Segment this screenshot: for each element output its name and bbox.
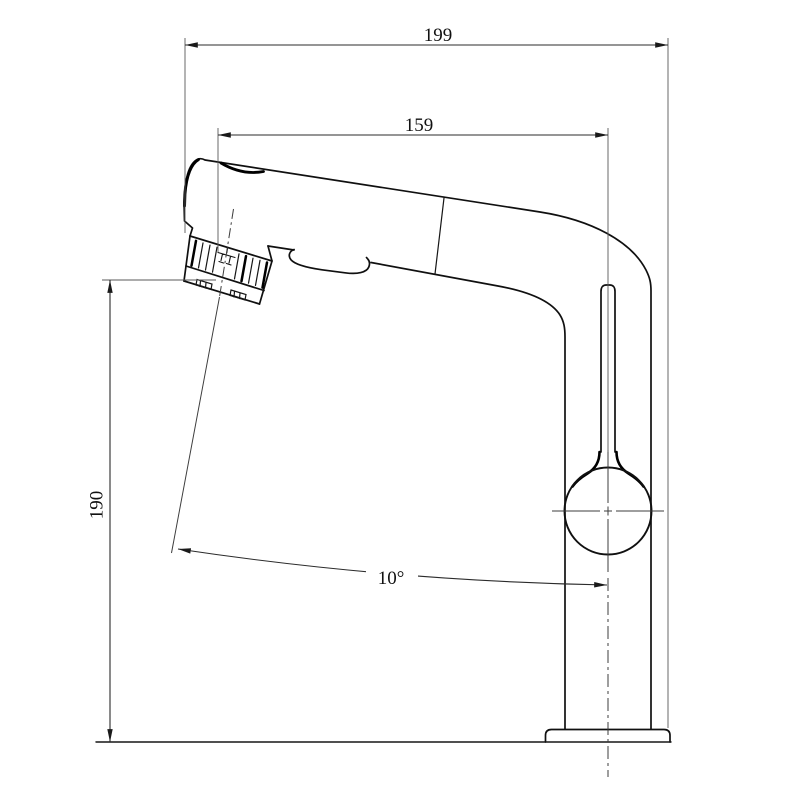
faucet-outline bbox=[96, 159, 671, 742]
head-bottom-edge bbox=[184, 281, 260, 304]
spray-axis-extension bbox=[172, 297, 220, 553]
dim-value-159: 159 bbox=[405, 115, 434, 136]
head-left-edge bbox=[184, 236, 190, 281]
dim-value-199: 199 bbox=[424, 25, 453, 46]
drawing-canvas: 199 159 190 10° bbox=[0, 0, 800, 800]
head-band-boundary bbox=[186, 266, 264, 291]
spout-underside-right-of-trigger bbox=[371, 263, 565, 730]
trigger-paddle bbox=[289, 250, 369, 274]
faucet-technical-drawing: 199 159 190 10° bbox=[0, 0, 800, 800]
dimension-height: 190 bbox=[87, 280, 217, 742]
spout-underside-and-left-body-edge bbox=[268, 246, 294, 250]
head-back-shade-line bbox=[185, 160, 199, 206]
dimension-spray-angle: 10° bbox=[178, 549, 607, 589]
dimension-spout-reach: 159 bbox=[218, 115, 608, 452]
dim-value-190: 190 bbox=[87, 491, 108, 520]
knob-center-marks bbox=[552, 450, 664, 572]
spout-top-and-right-body-edge bbox=[184, 159, 651, 729]
spout-seam-line bbox=[435, 198, 444, 274]
dim-value-angle: 10° bbox=[378, 568, 405, 589]
